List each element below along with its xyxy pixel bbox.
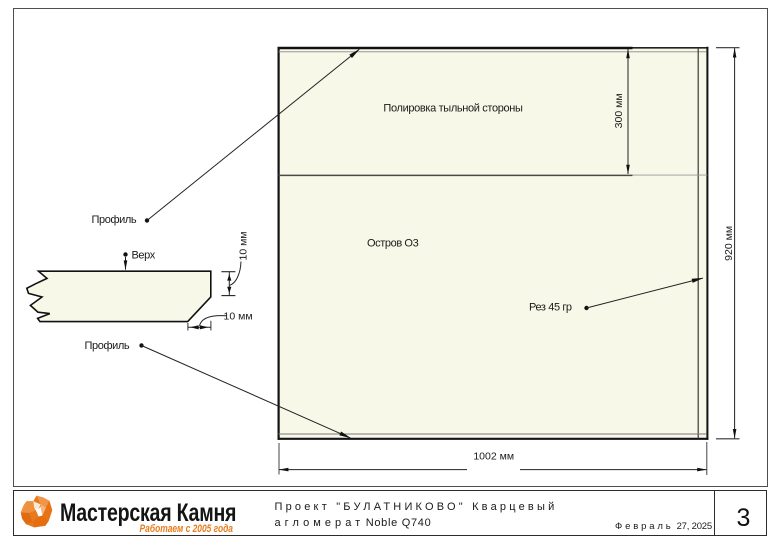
svg-text:Профиль: Профиль [92, 214, 137, 226]
svg-text:300 мм: 300 мм [613, 93, 625, 128]
svg-text:Полировка тыльной стороны: Полировка тыльной стороны [383, 103, 523, 115]
svg-text:10 мм: 10 мм [224, 310, 253, 322]
svg-text:920 мм: 920 мм [723, 226, 735, 261]
svg-text:1002 мм: 1002 мм [473, 450, 514, 462]
svg-text:Остров О3: Остров О3 [367, 238, 419, 250]
svg-text:Профиль: Профиль [85, 340, 130, 352]
svg-text:Верх: Верх [132, 249, 156, 261]
svg-text:Рез 45 гр: Рез 45 гр [529, 302, 572, 314]
svg-text:10 мм: 10 мм [237, 231, 249, 260]
